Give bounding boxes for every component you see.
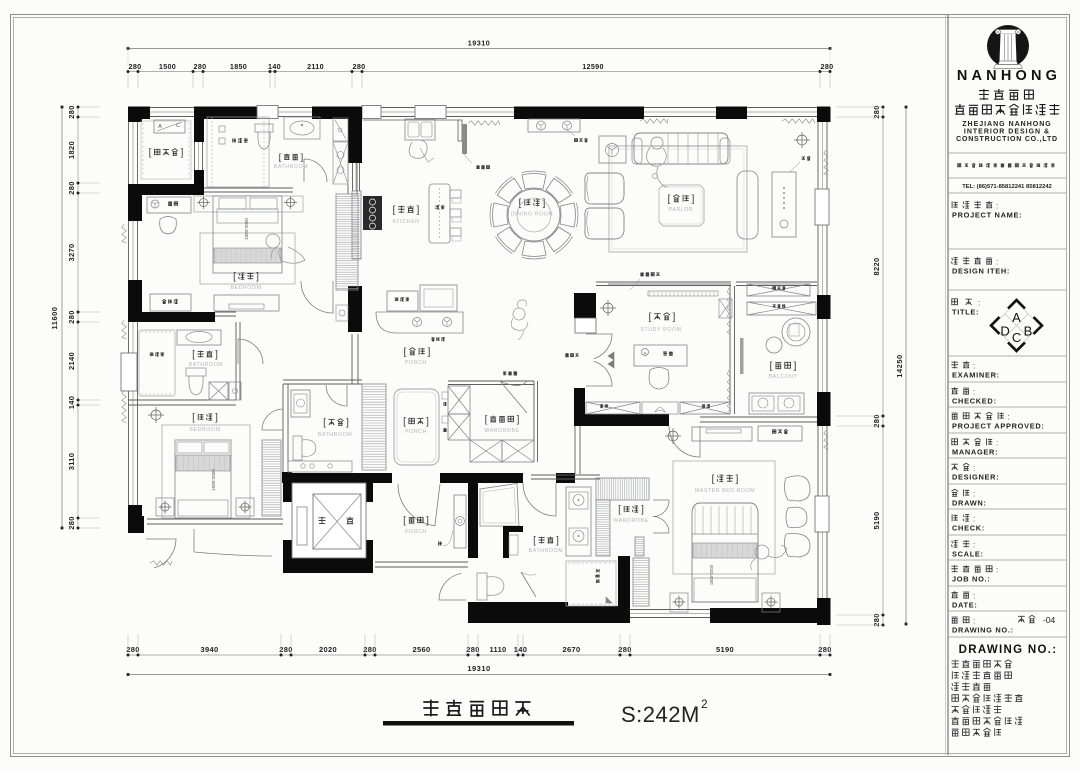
svg-text:INTERIOR DESIGN &: INTERIOR DESIGN & (964, 129, 1050, 136)
svg-text:ZHEJIANG NANHONG: ZHEJIANG NANHONG (962, 121, 1052, 128)
svg-text:2110: 2110 (307, 62, 324, 71)
svg-text:[: [ (403, 516, 406, 527)
svg-text:]: ] (556, 536, 559, 547)
svg-text:]: ] (692, 193, 695, 205)
svg-text:]: ] (426, 516, 429, 527)
svg-text:CONSTRUCTION CO.,LTD: CONSTRUCTION CO.,LTD (956, 136, 1058, 143)
svg-text:WARDROBE: WARDROBE (484, 428, 519, 434)
svg-text::: : (973, 464, 975, 473)
svg-text::: : (996, 566, 998, 575)
svg-text::: : (973, 592, 975, 601)
svg-text:2: 2 (701, 697, 708, 711)
svg-text:DRAWING NO.:: DRAWING NO.: (952, 626, 1014, 635)
svg-text:S:242M: S:242M (621, 702, 700, 727)
svg-text:[: [ (403, 417, 406, 428)
svg-text:280: 280 (363, 645, 376, 654)
svg-text:2020: 2020 (319, 645, 337, 654)
svg-text:PORCH: PORCH (405, 360, 427, 366)
svg-text:STUDY ROOM: STUDY ROOM (640, 327, 681, 333)
svg-text:5190: 5190 (716, 645, 734, 654)
svg-text:MANAGER:: MANAGER: (952, 448, 998, 457)
svg-text:1850: 1850 (230, 62, 247, 71)
svg-text:140: 140 (268, 62, 281, 71)
svg-text:3940: 3940 (201, 645, 219, 654)
svg-text:DESIGN ITEH:: DESIGN ITEH: (952, 267, 1010, 276)
svg-text::: : (973, 617, 975, 626)
svg-text::: : (996, 258, 998, 267)
svg-text:DRAWN:: DRAWN: (952, 499, 987, 508)
svg-text:]: ] (256, 272, 259, 283)
svg-text:280: 280 (67, 310, 76, 323)
svg-text:]: ] (543, 197, 546, 209)
svg-text:]: ] (794, 360, 797, 372)
svg-text:DATE:: DATE: (952, 601, 978, 610)
svg-text:[: [ (279, 152, 282, 163)
svg-text:5190: 5190 (872, 512, 881, 530)
svg-text:BEDROOM: BEDROOM (230, 285, 261, 291)
svg-text:1820: 1820 (67, 141, 76, 159)
svg-text:[: [ (649, 311, 652, 323)
svg-text:]: ] (428, 346, 431, 358)
svg-text::: : (1008, 413, 1010, 422)
svg-text:C: C (176, 123, 180, 129)
svg-text:2670: 2670 (563, 645, 581, 654)
svg-text:1800*2000: 1800*2000 (244, 218, 249, 240)
svg-text:1800*2000: 1800*2000 (709, 564, 714, 585)
svg-text:TITLE:: TITLE: (952, 308, 979, 317)
svg-text:A: A (1012, 310, 1021, 325)
svg-text:280: 280 (818, 645, 831, 654)
svg-text:280: 280 (194, 62, 207, 71)
svg-text:[: [ (233, 272, 236, 283)
svg-text:[: [ (533, 536, 536, 547)
svg-text:280: 280 (821, 62, 834, 71)
svg-text:]: ] (301, 152, 304, 163)
svg-text:CHECK:: CHECK: (952, 524, 985, 533)
svg-text:[: [ (323, 418, 326, 429)
svg-text:11600: 11600 (50, 307, 59, 330)
svg-text:1500: 1500 (159, 62, 176, 71)
svg-text:BATHROOM: BATHROOM (274, 164, 308, 170)
svg-text:]: ] (215, 413, 218, 424)
svg-text:PORCH: PORCH (405, 529, 427, 535)
svg-text:[: [ (618, 505, 621, 516)
svg-text:SCALE:: SCALE: (952, 550, 984, 559)
svg-text:BATHROOM: BATHROOM (189, 362, 223, 368)
svg-text:19310: 19310 (467, 664, 490, 673)
svg-text::: : (978, 299, 980, 308)
svg-text:DESIGNER:: DESIGNER: (952, 473, 999, 482)
svg-text:[: [ (393, 204, 396, 216)
svg-text:]: ] (736, 473, 739, 485)
svg-text:280: 280 (353, 62, 366, 71)
svg-text:2560: 2560 (413, 645, 431, 654)
svg-text:]: ] (181, 148, 184, 159)
svg-text:EXAMINER:: EXAMINER: (952, 371, 1000, 380)
svg-text:BATHROOM: BATHROOM (318, 432, 352, 438)
svg-text:BEDROOM: BEDROOM (189, 427, 220, 433)
svg-text:280: 280 (67, 181, 76, 194)
svg-text:A: A (644, 351, 647, 356)
svg-text::: : (973, 490, 975, 499)
svg-text:]: ] (417, 204, 420, 216)
svg-text:BATHROOM: BATHROOM (529, 548, 563, 554)
svg-text:B: B (1024, 324, 1033, 339)
svg-text:]: ] (673, 311, 676, 323)
svg-text:1500*2000: 1500*2000 (211, 469, 216, 491)
svg-text:[: [ (149, 148, 152, 159)
svg-text:NANHONG: NANHONG (957, 68, 1061, 84)
svg-text:-04: -04 (1043, 615, 1056, 625)
svg-text:280: 280 (872, 414, 881, 427)
svg-text:14250: 14250 (895, 354, 904, 377)
svg-text:280: 280 (129, 62, 142, 71)
svg-text:JOB NO.:: JOB NO.: (952, 575, 990, 584)
svg-text:[: [ (192, 413, 195, 424)
svg-text:280: 280 (67, 516, 76, 529)
svg-text:280: 280 (872, 613, 881, 626)
svg-text:19310: 19310 (468, 39, 491, 48)
svg-text:8220: 8220 (872, 258, 881, 276)
svg-text:280: 280 (618, 645, 631, 654)
svg-text:1110: 1110 (489, 645, 506, 654)
svg-text::: : (973, 541, 975, 550)
svg-text:]: ] (517, 415, 520, 426)
svg-text:3110: 3110 (67, 453, 76, 470)
svg-text:12590: 12590 (582, 62, 604, 71)
svg-text:A: A (158, 124, 162, 130)
svg-text:280: 280 (67, 105, 76, 118)
svg-text:BALCONY: BALCONY (769, 374, 798, 380)
svg-text:280: 280 (126, 645, 139, 654)
svg-text:PROJECT APPROVED:: PROJECT APPROVED: (952, 422, 1045, 431)
svg-text:CHECKED:: CHECKED: (952, 397, 997, 406)
svg-text:D: D (1000, 324, 1009, 339)
svg-text:[: [ (485, 415, 488, 426)
svg-text:[: [ (770, 360, 773, 372)
svg-text:140: 140 (67, 396, 76, 409)
svg-text:PROJECT NAME:: PROJECT NAME: (952, 211, 1022, 220)
svg-text:280: 280 (466, 645, 479, 654)
svg-text:]: ] (346, 418, 349, 429)
svg-text:3270: 3270 (67, 244, 76, 262)
svg-text:140: 140 (514, 645, 527, 654)
svg-text:MASTER BED ROOM: MASTER BED ROOM (695, 488, 755, 494)
svg-text:WARDROBE: WARDROBE (613, 518, 648, 524)
svg-text::: : (996, 202, 998, 211)
svg-text:]: ] (215, 350, 218, 361)
svg-text:280: 280 (279, 645, 292, 654)
svg-text:DRAWING NO.:: DRAWING NO.: (959, 644, 1058, 656)
svg-text:PORCH: PORCH (405, 429, 427, 435)
svg-text::: : (996, 439, 998, 448)
svg-text:[: [ (404, 346, 407, 358)
svg-text:280: 280 (872, 105, 881, 118)
svg-text:PARLOR: PARLOR (669, 207, 694, 213)
svg-text:[: [ (192, 350, 195, 361)
svg-text:[: [ (668, 193, 671, 205)
svg-text:]: ] (641, 505, 644, 516)
svg-text:C: C (1012, 330, 1021, 345)
svg-text::: : (973, 388, 975, 397)
svg-text:TEL: (86)571-85812241 858122: TEL: (86)571-85812241 85812242 (962, 184, 1052, 190)
svg-text::: : (973, 362, 975, 371)
svg-text::: : (973, 515, 975, 524)
svg-text:KITCHEN: KITCHEN (393, 219, 420, 225)
svg-text:2140: 2140 (67, 352, 76, 370)
svg-text:]: ] (426, 417, 429, 428)
svg-text:[: [ (712, 473, 715, 485)
